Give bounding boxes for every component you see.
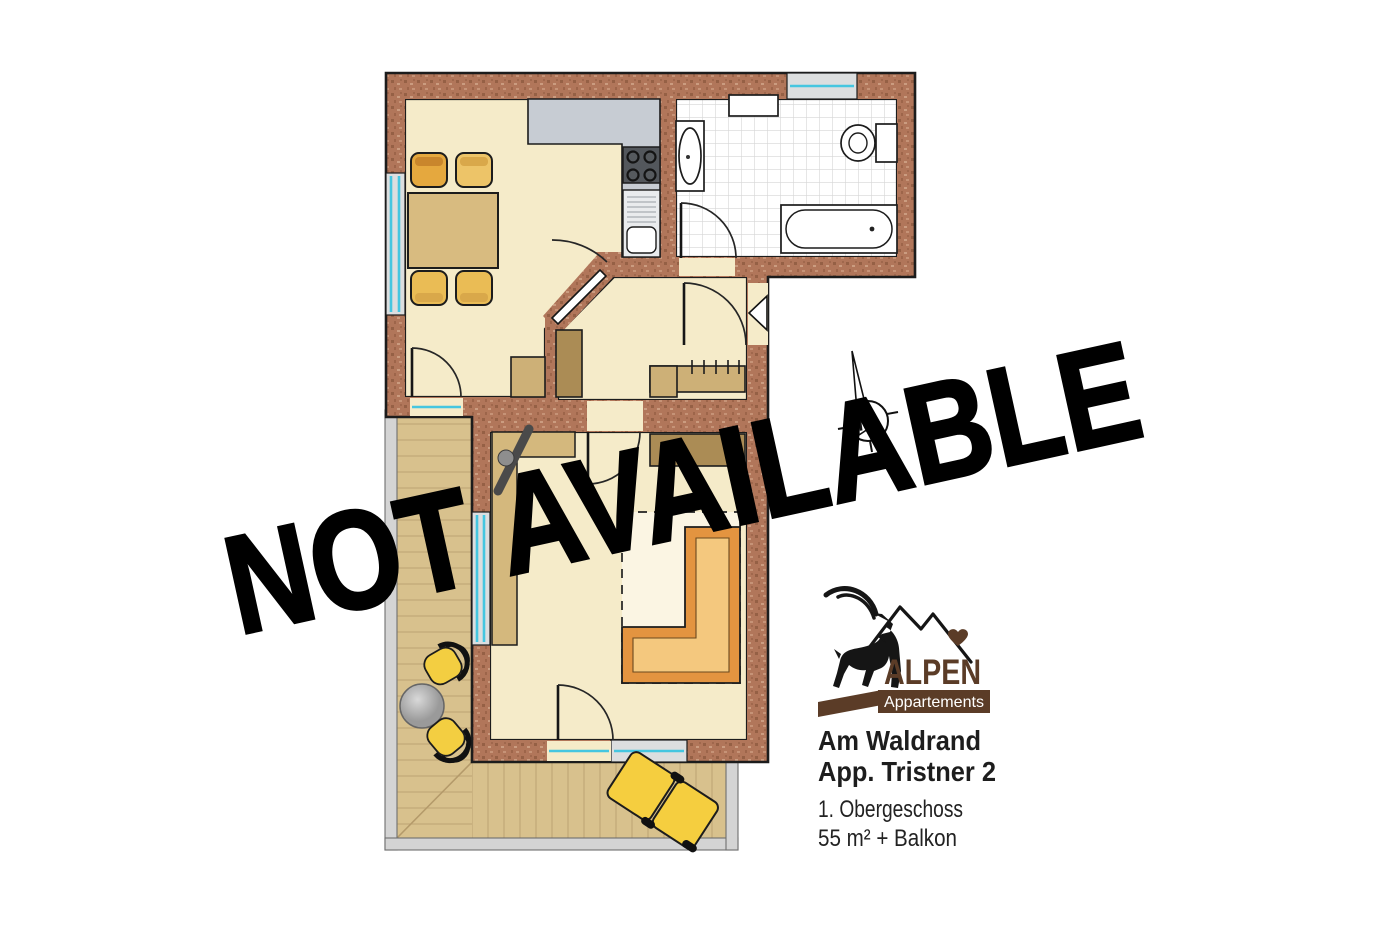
dining-chair <box>456 271 492 305</box>
listing-name-line2: App. Tristner 2 <box>818 756 996 787</box>
kitchen-sink <box>623 190 660 257</box>
balcony-door-living-gap <box>547 741 611 761</box>
dining-chair <box>456 153 492 187</box>
bathroom-window <box>787 73 857 99</box>
dining-table <box>408 193 498 268</box>
listing-area: 55 m² + Balkon <box>818 825 957 852</box>
floor-plan-image: N ALPEN Appartements Am Waldrand App. Tr… <box>0 0 1400 933</box>
listing-floor: 1. Obergeschoss <box>818 796 963 823</box>
wash-basin <box>676 121 704 191</box>
stove <box>623 147 660 183</box>
logo-subtitle: Appartements <box>884 694 984 711</box>
hall-closet <box>556 330 582 397</box>
hall-bench-step <box>650 366 677 397</box>
listing-name-line1: Am Waldrand <box>818 725 981 756</box>
bathtub <box>781 205 897 253</box>
kitchen-window <box>386 173 405 315</box>
bathroom-shelf <box>729 95 778 116</box>
toilet <box>841 124 897 162</box>
page-canvas: N ALPEN Appartements Am Waldrand App. Tr… <box>0 0 1400 933</box>
brand-logo: ALPEN Appartements <box>818 589 990 717</box>
listing-info: Am Waldrand App. Tristner 2 1. Obergesch… <box>818 725 996 852</box>
bathroom-door-gap <box>679 258 735 276</box>
dining-chair <box>411 153 447 187</box>
kitchen-cabinet <box>511 357 545 397</box>
heart-icon <box>948 629 968 646</box>
dining-chair <box>411 271 447 305</box>
logo-ground <box>818 690 882 717</box>
balcony-door-dining-gap <box>410 398 463 416</box>
balcony-railing-right <box>726 760 738 850</box>
logo-brand-name: ALPEN <box>884 653 981 692</box>
